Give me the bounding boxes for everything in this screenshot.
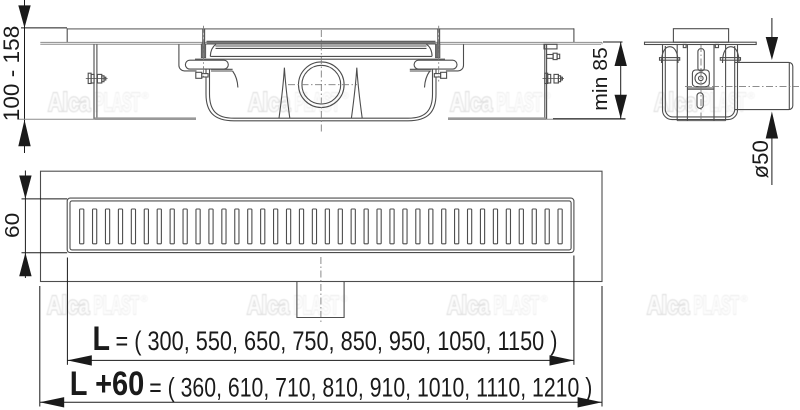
svg-text:60: 60 [2, 213, 24, 238]
svg-text:100 - 158: 100 - 158 [0, 26, 24, 122]
svg-text:L: L [93, 320, 111, 358]
svg-text:min 85: min 85 [590, 47, 612, 111]
svg-text:L +60: L +60 [70, 365, 145, 403]
svg-text:= ( 300, 550, 650, 750, 850, 9: = ( 300, 550, 650, 750, 850, 950, 1050, … [116, 326, 558, 356]
svg-text:ø50: ø50 [748, 140, 773, 178]
svg-text:= ( 360, 610, 710, 810, 910, 1: = ( 360, 610, 710, 810, 910, 1010, 1110,… [149, 373, 592, 403]
